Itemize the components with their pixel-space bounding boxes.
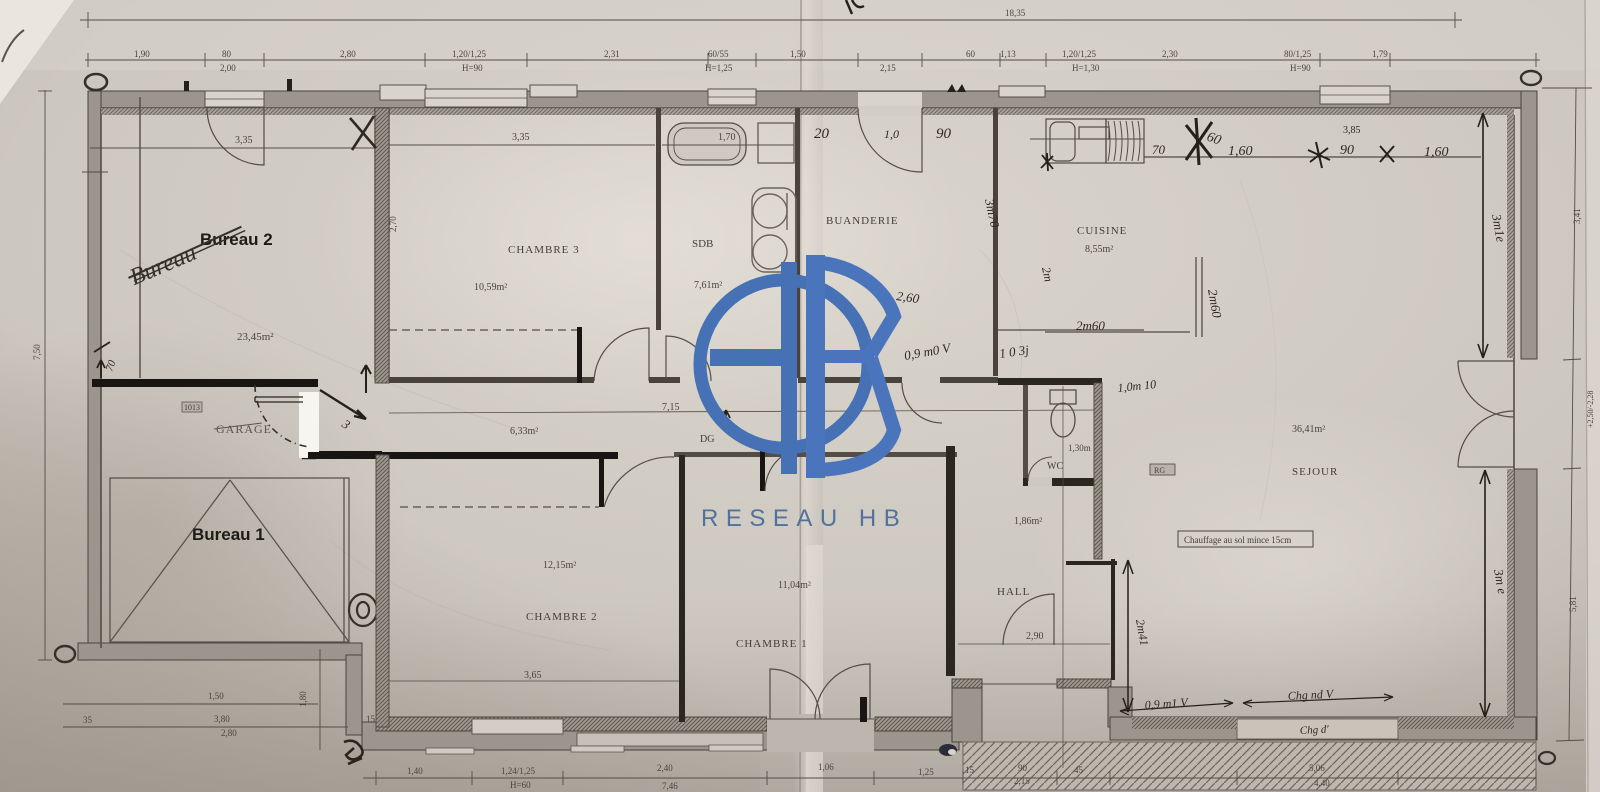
- svg-text:H=90: H=90: [1290, 63, 1311, 73]
- svg-text:1,50: 1,50: [790, 49, 806, 59]
- svg-text:1,20/1,25: 1,20/1,25: [452, 49, 487, 59]
- svg-text:15: 15: [965, 765, 975, 775]
- svg-text:1,60: 1,60: [1424, 145, 1449, 160]
- svg-text:Chauffage au sol mince 15cm: Chauffage au sol mince 15cm: [1184, 535, 1291, 545]
- svg-text:3,65: 3,65: [524, 670, 542, 681]
- svg-text:H=1,30: H=1,30: [1072, 63, 1100, 73]
- svg-text:DG: DG: [700, 434, 714, 445]
- svg-text:35: 35: [83, 715, 93, 725]
- svg-text:GARAGE: GARAGE: [216, 422, 272, 436]
- svg-text:1,0: 1,0: [884, 127, 899, 141]
- svg-text:70: 70: [1152, 142, 1166, 157]
- svg-text:3,85: 3,85: [1343, 125, 1361, 136]
- svg-text:1,90: 1,90: [134, 49, 150, 59]
- svg-text:1013: 1013: [184, 403, 200, 412]
- svg-text:2,00: 2,00: [220, 63, 236, 73]
- svg-text:2,60: 2,60: [896, 288, 921, 306]
- svg-text:2,15: 2,15: [880, 63, 896, 73]
- svg-text:H=1,25: H=1,25: [705, 63, 733, 73]
- svg-text:Chg nd V: Chg nd V: [1287, 687, 1335, 703]
- svg-text:1,24/1,25: 1,24/1,25: [501, 766, 536, 776]
- svg-text:11,04m²: 11,04m²: [778, 580, 811, 591]
- svg-text:1,79: 1,79: [1372, 49, 1388, 59]
- svg-text:2,31: 2,31: [604, 49, 620, 59]
- svg-text:Chg d': Chg d': [1300, 723, 1330, 737]
- svg-text:RESEAU HB: RESEAU HB: [701, 505, 907, 532]
- svg-text:2,80: 2,80: [221, 728, 237, 738]
- svg-text:SEJOUR: SEJOUR: [1292, 466, 1338, 478]
- svg-text:BUANDERIE: BUANDERIE: [826, 215, 899, 227]
- svg-text:1,20/1,25: 1,20/1,25: [1062, 49, 1097, 59]
- svg-text:6,33m²: 6,33m²: [510, 426, 538, 437]
- svg-text:5,06: 5,06: [1309, 763, 1325, 773]
- svg-text:1,06: 1,06: [818, 762, 834, 772]
- svg-text:3,35: 3,35: [512, 132, 530, 143]
- svg-text:45: 45: [1074, 765, 1084, 775]
- svg-text:60: 60: [966, 49, 976, 59]
- svg-text:1,40: 1,40: [407, 766, 423, 776]
- svg-text:2,70: 2,70: [388, 216, 398, 232]
- svg-text:36,41m²: 36,41m²: [1292, 424, 1325, 435]
- svg-text:1,80: 1,80: [298, 691, 308, 707]
- svg-text:60/55: 60/55: [708, 49, 729, 59]
- svg-text:1,25: 1,25: [918, 767, 934, 777]
- svg-text:80/1,25: 80/1,25: [1284, 49, 1312, 59]
- svg-text:2,80: 2,80: [340, 49, 356, 59]
- svg-text:Bureau 1: Bureau 1: [192, 525, 265, 544]
- svg-text:3,80: 3,80: [214, 714, 230, 724]
- svg-text:1,60: 1,60: [1228, 144, 1253, 159]
- svg-text:SDB: SDB: [692, 238, 713, 250]
- svg-text:2m60: 2m60: [1076, 318, 1105, 333]
- svg-text:8,55m²: 8,55m²: [1085, 244, 1113, 255]
- svg-text:WC: WC: [1047, 461, 1063, 472]
- svg-text:+2,50/-2,28: +2,50/-2,28: [1586, 391, 1595, 428]
- svg-text:7,50: 7,50: [32, 344, 42, 360]
- svg-text:CHAMBRE 2: CHAMBRE 2: [526, 611, 598, 623]
- svg-text:1,70: 1,70: [718, 132, 736, 143]
- svg-text:H=90: H=90: [462, 63, 483, 73]
- svg-text:90: 90: [1018, 763, 1028, 773]
- svg-text:CHAMBRE 3: CHAMBRE 3: [508, 244, 580, 256]
- svg-text:10,59m²: 10,59m²: [474, 282, 507, 293]
- svg-text:H=60: H=60: [510, 780, 531, 790]
- svg-text:4,40: 4,40: [1314, 778, 1330, 788]
- svg-text:20: 20: [814, 126, 830, 142]
- svg-text:2,30: 2,30: [1162, 49, 1178, 59]
- svg-text:1,86m²: 1,86m²: [1014, 516, 1042, 527]
- svg-text:7,61m²: 7,61m²: [694, 280, 722, 291]
- svg-text:1,13: 1,13: [1000, 49, 1016, 59]
- svg-text:3,35: 3,35: [235, 135, 253, 146]
- svg-text:18,35: 18,35: [1005, 8, 1026, 18]
- svg-text:7,46: 7,46: [662, 781, 678, 791]
- svg-text:23,45m²: 23,45m²: [237, 331, 274, 343]
- svg-text:5,81: 5,81: [1568, 596, 1578, 612]
- svg-text:2,90: 2,90: [1026, 631, 1044, 642]
- svg-text:CHAMBRE 1: CHAMBRE 1: [736, 638, 808, 650]
- svg-text:90: 90: [1340, 143, 1354, 158]
- svg-text:RG: RG: [1154, 466, 1165, 475]
- svg-text:CUISINE: CUISINE: [1077, 225, 1127, 237]
- svg-text:90: 90: [936, 126, 952, 142]
- svg-text:80: 80: [222, 49, 232, 59]
- svg-text:3,41: 3,41: [1572, 208, 1582, 224]
- svg-text:HALL: HALL: [997, 586, 1030, 598]
- svg-text:15: 15: [366, 714, 376, 724]
- svg-text:2,15: 2,15: [1014, 776, 1030, 786]
- svg-text:7,15: 7,15: [662, 402, 680, 413]
- svg-text:2,40: 2,40: [657, 763, 673, 773]
- svg-text:1,30m: 1,30m: [1068, 443, 1091, 453]
- svg-text:1,50: 1,50: [208, 691, 224, 701]
- svg-text:12,15m²: 12,15m²: [543, 560, 576, 571]
